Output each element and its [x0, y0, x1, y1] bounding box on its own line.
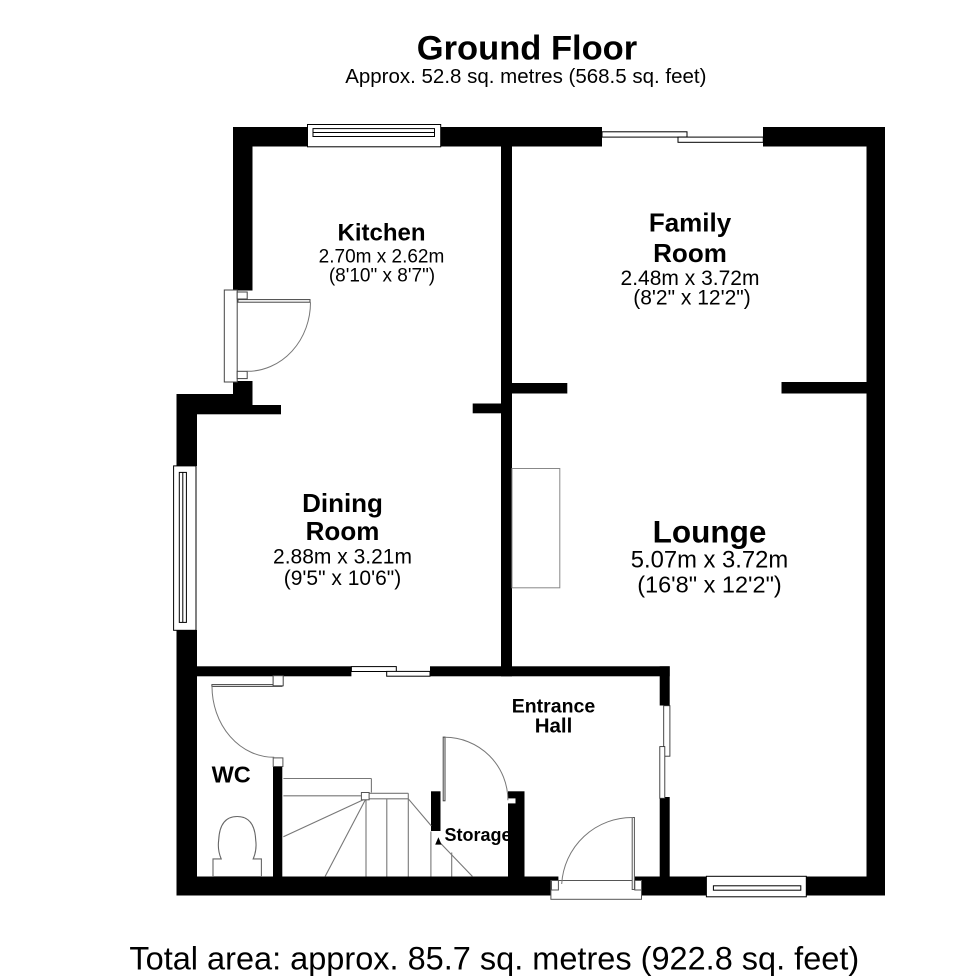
svg-text:Room: Room — [653, 238, 727, 268]
svg-text:Room: Room — [306, 516, 380, 546]
svg-text:Approx. 52.8 sq. metres (568.5: Approx. 52.8 sq. metres (568.5 sq. feet) — [345, 65, 706, 88]
svg-text:Kitchen: Kitchen — [337, 220, 425, 247]
svg-text:(16'8" x 12'2"): (16'8" x 12'2") — [637, 572, 782, 598]
svg-text:Total area: approx. 85.7 sq. m: Total area: approx. 85.7 sq. metres (922… — [129, 941, 859, 977]
svg-text:Storage: Storage — [444, 825, 511, 845]
svg-text:Dining: Dining — [302, 488, 383, 518]
svg-text:(8'2" x 12'2"): (8'2" x 12'2") — [633, 287, 750, 310]
svg-text:5.07m x 3.72m: 5.07m x 3.72m — [631, 547, 788, 574]
svg-text:Hall: Hall — [535, 714, 573, 737]
svg-text:Lounge: Lounge — [653, 513, 767, 549]
svg-text:Family: Family — [649, 208, 732, 238]
svg-text:2.88m x 3.21m: 2.88m x 3.21m — [273, 546, 412, 569]
svg-text:(9'5" x 10'6"): (9'5" x 10'6") — [284, 567, 401, 590]
svg-text:(8'10" x 8'7"): (8'10" x 8'7") — [329, 266, 435, 287]
svg-text:Ground Floor: Ground Floor — [417, 30, 637, 68]
svg-text:WC: WC — [212, 762, 251, 788]
svg-text:2.70m x 2.62m: 2.70m x 2.62m — [319, 247, 445, 268]
